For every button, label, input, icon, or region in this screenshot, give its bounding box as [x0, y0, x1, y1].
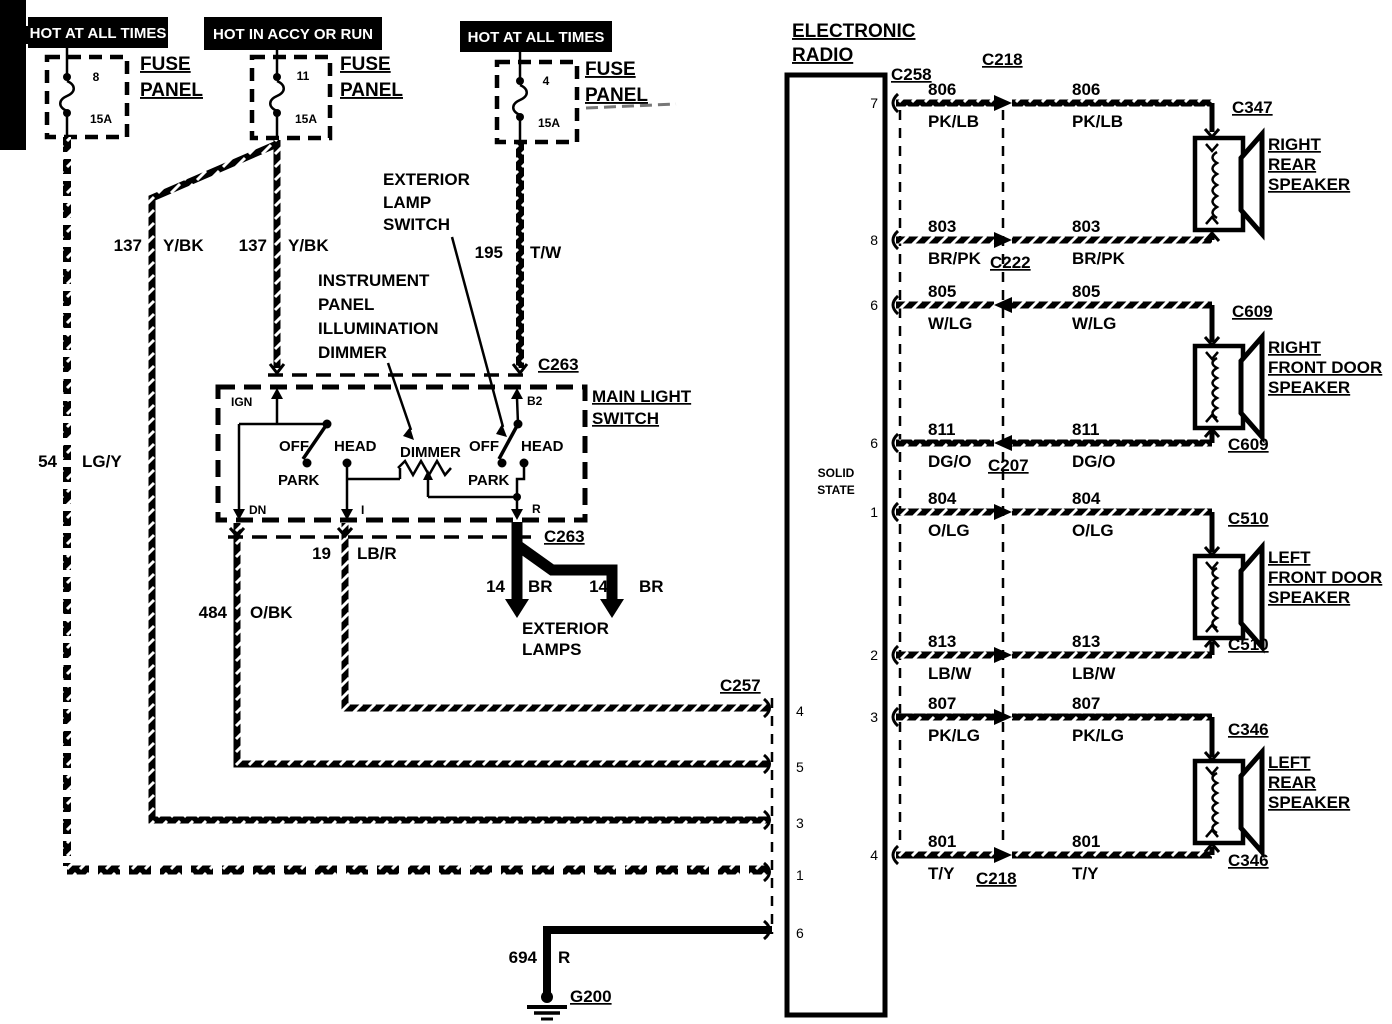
ground-terminal: [541, 991, 553, 1003]
arrow-up-b2: [511, 388, 523, 399]
switch-pos-park: PARK: [468, 472, 510, 489]
fuse-amps: 15A: [295, 112, 317, 126]
radio-right-pin: 2: [870, 647, 878, 663]
wire-color: Y/BK: [288, 236, 329, 255]
wire-color: O/BK: [250, 603, 293, 622]
speaker-name-line: SPEAKER: [1268, 378, 1350, 397]
connector-label: C207: [988, 456, 1029, 475]
scan-artifact-join: [0, 26, 30, 44]
speaker-name-line: LEFT: [1268, 753, 1311, 772]
wire-num: 484: [199, 603, 228, 622]
fuse-panel-label-line1: FUSE: [340, 54, 391, 75]
fuse-amps: 15A: [538, 116, 560, 130]
banner-label: HOT AT ALL TIMES: [468, 29, 605, 46]
fuse-element: [513, 85, 527, 115]
wire-19-lbr: [345, 523, 768, 708]
switch-contact-off: [303, 459, 312, 468]
speaker-name-line: FRONT DOOR: [1268, 568, 1382, 587]
speaker-name-line: LEFT: [1268, 548, 1311, 567]
wire-color: PK/LB: [928, 112, 979, 131]
annotation-line: ILLUMINATION: [318, 319, 439, 338]
connector-c263-top: C263: [268, 355, 579, 375]
fuse-element: [60, 81, 74, 111]
radio-right-pin: 6: [870, 297, 878, 313]
connector-c258: C258: [891, 65, 932, 848]
ground-g200: G200: [527, 987, 612, 1019]
wire-num: 803: [928, 217, 956, 236]
switch-pos-off: OFF: [279, 438, 309, 455]
switch-pos-off: OFF: [469, 438, 499, 455]
radio-solid-state-line1: SOLID: [818, 466, 855, 480]
speaker-name-line: RIGHT: [1268, 135, 1322, 154]
wire-color: PK/LG: [928, 726, 980, 745]
fuse-box: [47, 57, 127, 137]
connector-label: C263: [538, 355, 579, 374]
speaker-arrow-bottom: [1206, 625, 1218, 632]
wire-num: 807: [1072, 694, 1100, 713]
wire-num: 813: [1072, 632, 1100, 651]
fuse-panel-label-line2: PANEL: [585, 85, 648, 106]
wire-row-805: 805 W/LG 805 W/LG C609: [893, 282, 1273, 342]
radio-left-pin: 4: [796, 703, 804, 719]
fuse-terminal: [273, 109, 281, 117]
wire-num: 137: [239, 236, 267, 255]
switch-dimmer-label: DIMMER: [400, 444, 461, 461]
connector-label: C218: [976, 869, 1017, 888]
main-light-switch: IGN B2 OFF HEAD PARK DIMMER OFF HEAD PAR…: [218, 387, 585, 520]
fuse-number: 8: [93, 70, 100, 84]
connector-arrow: [994, 95, 1012, 111]
annotation-line: EXTERIOR: [383, 170, 470, 189]
wire-color: T/Y: [928, 864, 955, 883]
wire-num: 813: [928, 632, 956, 651]
fuse-terminal: [63, 73, 71, 81]
fuse-number: 4: [543, 74, 550, 88]
switch-pin-dn: DN: [249, 503, 266, 517]
speaker-coil: [1213, 152, 1218, 218]
connector-label: C263: [544, 527, 585, 546]
wire-color: O/LG: [928, 521, 970, 540]
wire-num: 804: [1072, 489, 1101, 508]
wire-num: 805: [1072, 282, 1100, 301]
fuse-panel-label-line1: FUSE: [140, 54, 191, 75]
radio-left-pin: 6: [796, 925, 804, 941]
annotation-line: DIMMER: [318, 343, 387, 362]
fuse-terminal: [273, 73, 281, 81]
wire-num: 14: [589, 577, 608, 596]
fuse-element: [270, 81, 284, 111]
ground-label: G200: [570, 987, 612, 1006]
wire-color: BR: [639, 577, 664, 596]
wire-num: 811: [1072, 420, 1099, 439]
wire-color: W/LG: [928, 314, 972, 333]
wire-num: 801: [928, 832, 956, 851]
connector-label: C258: [891, 65, 932, 84]
wire-row-806: 806 PK/LB 806 PK/LB C347: [893, 80, 1273, 132]
speaker-name-line: SPEAKER: [1268, 793, 1350, 812]
wire-num: 801: [1072, 832, 1100, 851]
annotation-line: SWITCH: [383, 215, 450, 234]
fuse-terminal: [516, 77, 524, 85]
speaker-name-line: SPEAKER: [1268, 588, 1350, 607]
wire-num: 803: [1072, 217, 1100, 236]
arrow-up-ign: [271, 388, 283, 399]
main-light-switch-title: MAIN LIGHT SWITCH: [592, 387, 692, 428]
switch-wire: [517, 463, 524, 512]
wire-row-801: 801 T/Y 801 T/Y C218 C346: [893, 832, 1269, 888]
wire-694-r: [547, 930, 772, 995]
fuse-panel-label-line2: PANEL: [340, 80, 403, 101]
title-line: MAIN LIGHT: [592, 387, 692, 406]
fuse-panel-1: 8 15A FUSE PANEL: [47, 46, 203, 137]
wiring-diagram-page: HOT AT ALL TIMES HOT IN ACCY OR RUN HOT …: [0, 0, 1392, 1024]
wire-num: 54: [38, 452, 57, 471]
speaker-arrow-bottom: [1206, 415, 1218, 422]
connector-label: C222: [990, 253, 1031, 272]
radio-left-pin: 5: [796, 759, 804, 775]
annotation-line: INSTRUMENT: [318, 271, 430, 290]
wire-num: 804: [928, 489, 957, 508]
speaker-arrow-top: [1206, 144, 1218, 151]
wire-color: BR/PK: [1072, 249, 1126, 268]
banner-label: HOT IN ACCY OR RUN: [213, 26, 373, 43]
wire-num: 806: [1072, 80, 1100, 99]
wire-num: 19: [312, 544, 331, 563]
wire-color: R: [558, 948, 570, 967]
radio-right-pin: 7: [870, 95, 878, 111]
banner-hot-at-all-times-2: HOT AT ALL TIMES: [460, 21, 612, 52]
dimmer-resistor: [398, 461, 451, 475]
wire-color: PK/LG: [1072, 726, 1124, 745]
pointer-line: [452, 237, 503, 427]
pointer-arrowhead: [496, 424, 507, 437]
wire-color: DG/O: [928, 452, 971, 471]
wire-color: Y/BK: [163, 236, 204, 255]
speaker-left-rear: LEFT REAR SPEAKER: [1195, 752, 1350, 852]
connector-c263-bottom: C263: [228, 527, 585, 546]
speaker-name-line: FRONT DOOR: [1268, 358, 1382, 377]
arrow-down-exterior-lamps: [505, 599, 529, 618]
wire-color: LB/W: [928, 664, 972, 683]
radio-title-line1: ELECTRONIC: [792, 21, 916, 42]
exterior-lamps-line: EXTERIOR: [522, 619, 609, 638]
wire-num: 811: [928, 420, 955, 439]
speaker-box: [1195, 138, 1243, 230]
radio-right-pin: 6: [870, 435, 878, 451]
exterior-lamps-line: LAMPS: [522, 640, 582, 659]
wire-num: 195: [475, 243, 503, 262]
speaker-name-line: RIGHT: [1268, 338, 1322, 357]
connector-label: C218: [982, 50, 1023, 69]
connector-c218-column: C218: [982, 50, 1023, 848]
wire-color: T/W: [530, 243, 562, 262]
wire-num: 806: [928, 80, 956, 99]
speaker-box: [1195, 346, 1243, 428]
radio-right-pin: 4: [870, 847, 878, 863]
speaker-coil: [1213, 358, 1218, 418]
instrument-dimmer-annotation: INSTRUMENT PANEL ILLUMINATION DIMMER: [318, 271, 439, 440]
speaker-name-line: SPEAKER: [1268, 175, 1350, 194]
fuse-box: [497, 62, 577, 142]
fuse-box: [252, 57, 330, 138]
radio-left-pin: 1: [796, 867, 804, 883]
switch-pos-park: PARK: [278, 472, 320, 489]
speaker-coil: [1213, 568, 1218, 628]
fuse-terminal: [516, 113, 524, 121]
wire-row-804: 804 O/LG 804 O/LG C510: [893, 489, 1269, 552]
wire-color: PK/LB: [1072, 112, 1123, 131]
wire-color: T/Y: [1072, 864, 1099, 883]
annotation-line: LAMP: [383, 193, 431, 212]
switch-pin-i: I: [361, 503, 364, 517]
banner-label: HOT AT ALL TIMES: [30, 25, 167, 42]
wire-num: 137: [114, 236, 142, 255]
wire-color: LG/Y: [82, 452, 122, 471]
banner-hot-in-accy-or-run: HOT IN ACCY OR RUN: [204, 17, 382, 50]
wire-color: BR/PK: [928, 249, 982, 268]
fuse-amps: 15A: [90, 112, 112, 126]
connector-label: C347: [1232, 98, 1273, 117]
wire-num: 694: [509, 948, 538, 967]
pointer-line: [388, 363, 411, 430]
speaker-right-rear: RIGHT REAR SPEAKER: [1195, 129, 1350, 241]
radio-right-pin: 1: [870, 504, 878, 520]
switch-pos-head: HEAD: [334, 438, 377, 455]
wire-color: LB/W: [1072, 664, 1116, 683]
wire-row-807: 807 PK/LG 807 PK/LG C346: [893, 694, 1269, 757]
radio-right-pin: 3: [870, 709, 878, 725]
speaker-name-line: REAR: [1268, 773, 1316, 792]
speaker-arrow-bottom: [1206, 830, 1218, 837]
wire-num: 807: [928, 694, 956, 713]
arrow-down-exterior-lamps: [600, 599, 624, 618]
fuse-panel-label-line1: FUSE: [585, 59, 636, 80]
wiring-diagram-canvas: HOT AT ALL TIMES HOT IN ACCY OR RUN HOT …: [0, 0, 1392, 1024]
radio-title-line2: RADIO: [792, 45, 853, 66]
fuse-panel-3: 4 15A FUSE PANEL: [497, 52, 676, 142]
wire-row-803: 803 BR/PK 803 BR/PK C222: [893, 217, 1212, 272]
fuse-terminal: [63, 109, 71, 117]
radio-right-pin: 8: [870, 232, 878, 248]
switch-pin-r: R: [532, 502, 541, 516]
title-line: SWITCH: [592, 409, 659, 428]
connector-label: C346: [1228, 720, 1269, 739]
radio-left-pin: 3: [796, 815, 804, 831]
connector-label: C510: [1228, 509, 1269, 528]
switch-pin-b2: B2: [527, 394, 543, 408]
connector-label: C257: [720, 676, 761, 695]
speaker-box: [1195, 556, 1243, 638]
wire-color: O/LG: [1072, 521, 1114, 540]
banner-hot-at-all-times-1: HOT AT ALL TIMES: [28, 17, 168, 48]
radio-solid-state-line2: STATE: [817, 483, 855, 497]
wire-color: DG/O: [1072, 452, 1115, 471]
annotation-line: PANEL: [318, 295, 374, 314]
wire-num: 805: [928, 282, 956, 301]
wire-color: LB/R: [357, 544, 397, 563]
speaker-right-front-door: RIGHT FRONT DOOR SPEAKER: [1195, 337, 1382, 437]
wire-color: BR: [528, 577, 553, 596]
connector-arrow: [994, 847, 1012, 863]
fuse-number: 11: [297, 69, 310, 83]
switch-pos-head: HEAD: [521, 438, 564, 455]
speaker-coil: [1213, 773, 1218, 833]
connector-label: C609: [1232, 302, 1273, 321]
switch-pin-ign: IGN: [231, 395, 252, 409]
wire-color: W/LG: [1072, 314, 1116, 333]
connector-arrow: [994, 647, 1012, 663]
scan-artifact-bar: [0, 0, 26, 150]
speaker-name-line: REAR: [1268, 155, 1316, 174]
pointer-arrowhead: [403, 427, 414, 440]
fuse-panel-2: 11 15A FUSE PANEL: [252, 48, 403, 138]
speaker-box: [1195, 761, 1243, 843]
speaker-left-front-door: LEFT FRONT DOOR SPEAKER: [1195, 547, 1382, 647]
switch-contact-off: [498, 459, 507, 468]
connector-c257: C257: [720, 676, 772, 939]
exterior-lamp-switch-annotation: EXTERIOR LAMP SWITCH: [383, 170, 507, 437]
fuse-panel-label-line2: PANEL: [140, 80, 203, 101]
wire-num: 14: [486, 577, 505, 596]
